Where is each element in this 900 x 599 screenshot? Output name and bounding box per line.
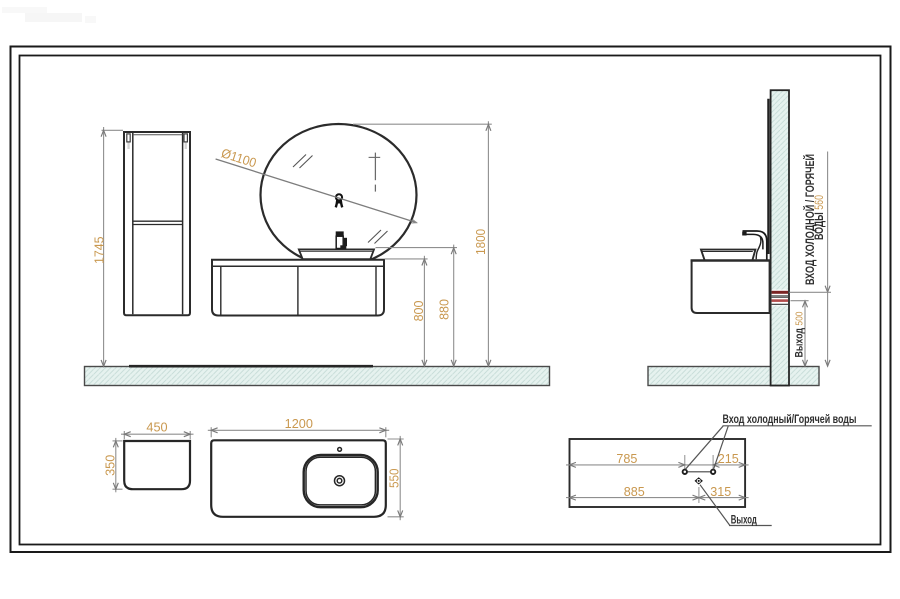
svg-text:Выход 500: Выход 500 <box>794 311 806 357</box>
svg-text:550: 550 <box>387 468 401 488</box>
svg-text:1800: 1800 <box>474 229 488 255</box>
svg-text:350: 350 <box>104 455 118 476</box>
svg-text:1200: 1200 <box>285 417 313 431</box>
svg-text:800: 800 <box>412 301 426 322</box>
svg-text:315: 315 <box>710 485 731 499</box>
svg-text:880: 880 <box>437 299 451 320</box>
svg-text:ВОДЫ 560: ВОДЫ 560 <box>814 195 826 240</box>
svg-text:215: 215 <box>718 452 739 466</box>
svg-text:1745: 1745 <box>92 237 106 265</box>
svg-text:450: 450 <box>146 420 167 434</box>
svg-text:885: 885 <box>624 485 645 499</box>
svg-text:Выход: Выход <box>731 513 757 527</box>
svg-text:Вход холодный/Горячей воды: Вход холодный/Горячей воды <box>723 412 857 426</box>
svg-text:785: 785 <box>616 452 637 466</box>
